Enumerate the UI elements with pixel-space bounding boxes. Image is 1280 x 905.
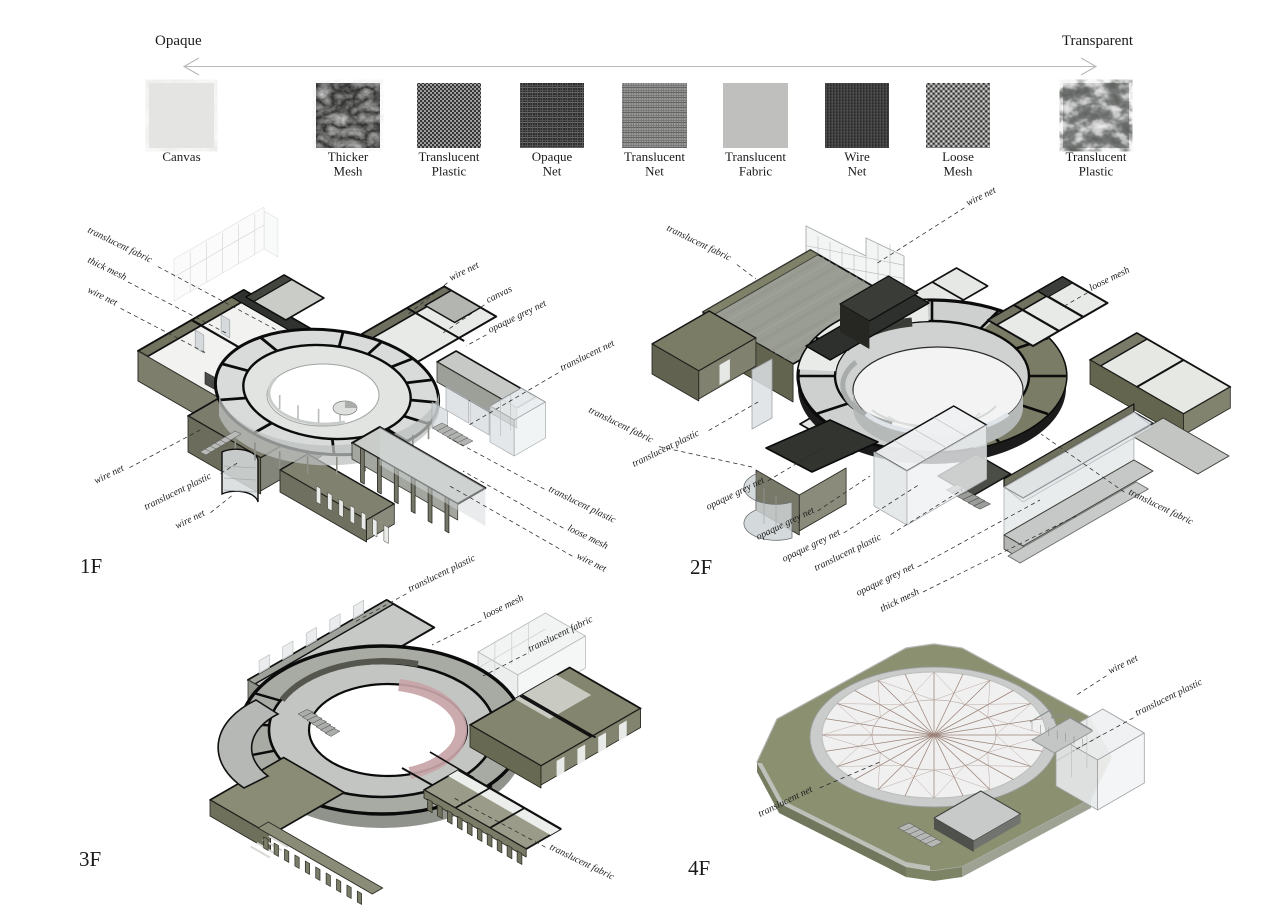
- svg-text:4F: 4F: [688, 856, 710, 880]
- svg-text:Mesh: Mesh: [944, 164, 973, 179]
- svg-text:Translucent: Translucent: [725, 149, 786, 164]
- svg-text:Opaque: Opaque: [155, 33, 202, 49]
- svg-text:Thicker: Thicker: [328, 149, 369, 164]
- svg-text:Plastic: Plastic: [432, 164, 467, 179]
- svg-text:Fabric: Fabric: [739, 164, 772, 179]
- svg-text:Net: Net: [848, 164, 867, 179]
- svg-text:Canvas: Canvas: [162, 149, 200, 164]
- svg-text:Loose: Loose: [942, 149, 974, 164]
- svg-text:3F: 3F: [79, 847, 101, 871]
- svg-text:Net: Net: [543, 164, 562, 179]
- svg-text:Net: Net: [645, 164, 664, 179]
- svg-text:Wire: Wire: [844, 149, 870, 164]
- svg-text:Mesh: Mesh: [334, 164, 363, 179]
- svg-text:1F: 1F: [80, 554, 102, 578]
- svg-text:Translucent: Translucent: [624, 149, 685, 164]
- svg-text:Translucent: Translucent: [1066, 149, 1127, 164]
- svg-text:2F: 2F: [690, 555, 712, 579]
- svg-text:Translucent: Translucent: [419, 149, 480, 164]
- svg-text:Plastic: Plastic: [1079, 164, 1114, 179]
- svg-text:Transparent: Transparent: [1062, 33, 1134, 49]
- svg-text:Opaque: Opaque: [532, 149, 573, 164]
